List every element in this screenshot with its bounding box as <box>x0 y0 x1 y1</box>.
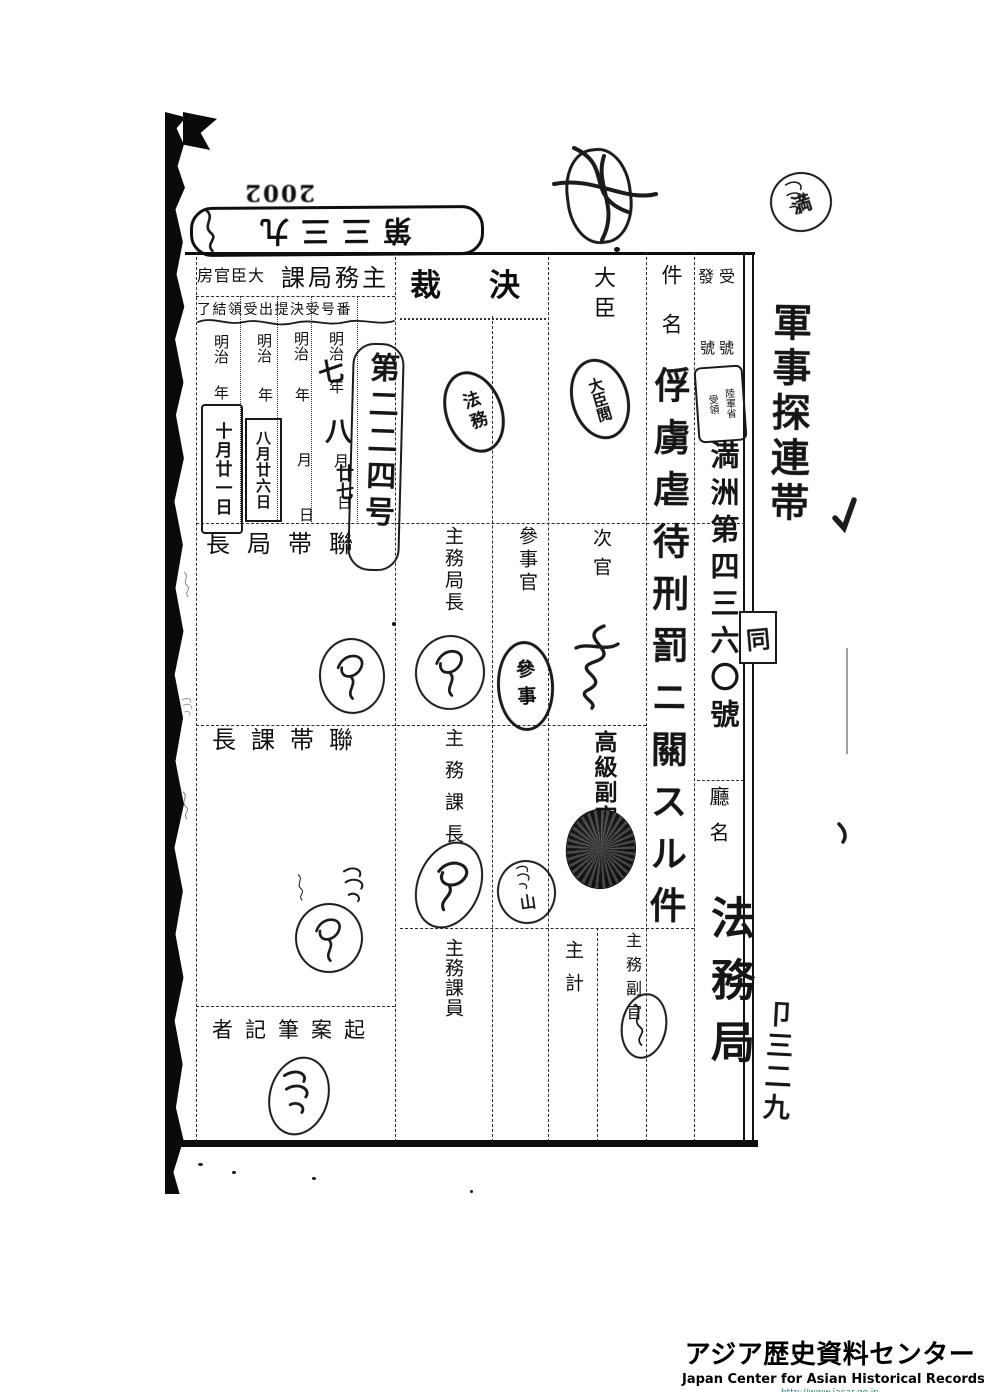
shomu-kyokucho-seal-squiggle <box>424 641 472 701</box>
rikugunsho-stamp-col1: 陸軍省 <box>720 388 737 419</box>
year-juryo: 年 <box>258 384 273 405</box>
header-shomu-kyokka: 課局務主 <box>281 258 391 293</box>
scan-corner-blob <box>183 112 217 150</box>
month-teishutsu: 月 <box>297 449 312 470</box>
speck <box>312 1177 316 1180</box>
label-gogo: 號號 <box>700 337 742 358</box>
speck <box>470 1190 473 1193</box>
document-number-stamp-text: 第三三九 <box>239 211 421 254</box>
label-shomu-kyokucho: 主務局長 <box>440 526 467 630</box>
seal-homu-text: 法務 <box>455 388 493 436</box>
rikugunsho-stamp-col2: 受領 <box>704 394 720 415</box>
speck <box>198 1163 203 1166</box>
speck <box>614 247 620 252</box>
divider-h-296 <box>196 296 395 297</box>
label-rentai-kyokucho: 長局帯聯 <box>206 524 370 559</box>
jacar-title-en: Japan Center for Asian Historical Record… <box>682 1372 978 1387</box>
header-kessai: 裁決 <box>410 260 568 305</box>
era-teishutsu: 明治 <box>291 331 312 361</box>
label-sanjikan: 參事官 <box>514 526 541 610</box>
scan-edge-strip <box>165 112 186 1194</box>
speck <box>232 1171 236 1174</box>
margin-note-bottom: 卩三二九 <box>752 999 798 1143</box>
label-uke-hatsu: 發受 <box>698 263 742 287</box>
header-daijin-kanbo: 房官臣大 <box>197 262 265 286</box>
table-left-border <box>196 252 197 1142</box>
received-date-stamp: 八月廿六日 <box>245 418 282 522</box>
rikugunsho-receipt-stamp: 陸軍省 受領 <box>693 364 747 443</box>
label-kian-hikkisha: 者記筆案起 <box>212 1014 377 1044</box>
completed-date-text: 十月廿一日 <box>210 422 235 517</box>
kian-seal-squiggle <box>278 1064 318 1126</box>
label-shukei: 主計 <box>560 940 587 1012</box>
margin-squiggle-3 <box>178 775 198 835</box>
day-judetsu: 日 <box>337 492 352 513</box>
label-jikan: 次官 <box>588 528 615 590</box>
year-teishutsu: 年 <box>295 384 310 405</box>
label-chomei: 廳名 <box>704 786 733 864</box>
seal-sanji-text: 參事 <box>511 658 541 713</box>
kessai-underline <box>400 318 546 320</box>
divider-h-1006 <box>196 1006 395 1007</box>
seal-daijin-etsu: 大臣閲 <box>561 352 639 447</box>
seal-yama-squiggle <box>506 862 542 896</box>
day-teishutsu: 日 <box>299 504 314 525</box>
archive-number: 2002 <box>245 179 315 206</box>
margin-note-right: 軍事探連帯 <box>758 302 818 541</box>
year-ketsuryo: 年 <box>214 382 229 403</box>
label-rentai-kacho: 長課帯聯 <box>212 720 368 755</box>
faint-vertical-stroke <box>846 648 848 754</box>
label-shomu-kain: 主務課員 <box>440 938 467 1022</box>
table-bottom-border <box>176 1140 758 1147</box>
sub-headers-row: 了結領受出提決受号番 <box>197 299 359 319</box>
jikan-kao-signature <box>554 618 638 714</box>
check-mark <box>830 494 858 534</box>
linked-mark-text: 同 <box>745 619 772 656</box>
completed-date-stamp: 十月廿一日 <box>201 404 243 534</box>
jacar-url: http://www.jacar.go.jp <box>682 1388 978 1392</box>
handwritten-mark-on-stamp <box>196 206 232 254</box>
kokyu-fukukan-dark-seal <box>562 806 640 893</box>
divider-v-597 <box>597 928 598 1142</box>
label-daijin: 大臣 <box>586 266 618 338</box>
margin-squiggle-2 <box>180 688 196 728</box>
year-judetsu: 年 <box>329 376 344 397</box>
handwritten-office-name: 法務局 <box>696 895 760 1113</box>
divider-h-780 <box>697 780 744 781</box>
cancel-strokes <box>544 136 664 256</box>
jacar-title-jp: アジア歴史資料センター <box>682 1334 978 1371</box>
era-juryo: 明治 <box>254 333 275 363</box>
hand-month: 八 <box>325 410 352 449</box>
document-number-stamp-box: 第三三九 <box>190 205 484 257</box>
jacar-watermark: アジア歴史資料センター Japan Center for Asian Histo… <box>682 1334 978 1392</box>
seal-homu: 法務 <box>432 363 515 462</box>
shomu-fukukan-seal-squiggle <box>628 1000 658 1048</box>
handwritten-subject: 俘虜虐待刑罰ニ關スル件 <box>637 366 697 1002</box>
table-top-border <box>185 252 755 255</box>
label-kenmei: 件名 <box>656 264 686 376</box>
handwritten-initial-mark-2 <box>293 872 313 902</box>
seal-daijin-etsu-text: 大臣閲 <box>584 374 617 423</box>
round-seal-squiggle <box>776 176 816 224</box>
era-ketsuryo: 明治 <box>211 334 232 364</box>
scanned-document-page: 2002 第三三九 満 課局務主 房官臣大 了結領受出提決受号番 第二二四号 明… <box>0 0 984 1392</box>
linked-mark-box: 同 <box>739 611 777 664</box>
handwritten-receipt-number: 満洲第四三六〇號 <box>702 440 744 772</box>
speck <box>392 622 396 626</box>
received-date-text: 八月廿六日 <box>253 430 274 510</box>
rentai-kyokucho-seal-squiggle <box>328 646 370 704</box>
margin-squiggle-1 <box>180 560 198 608</box>
small-tick-mark <box>835 820 853 844</box>
rentai-kacho-seal-squiggle <box>305 910 349 966</box>
